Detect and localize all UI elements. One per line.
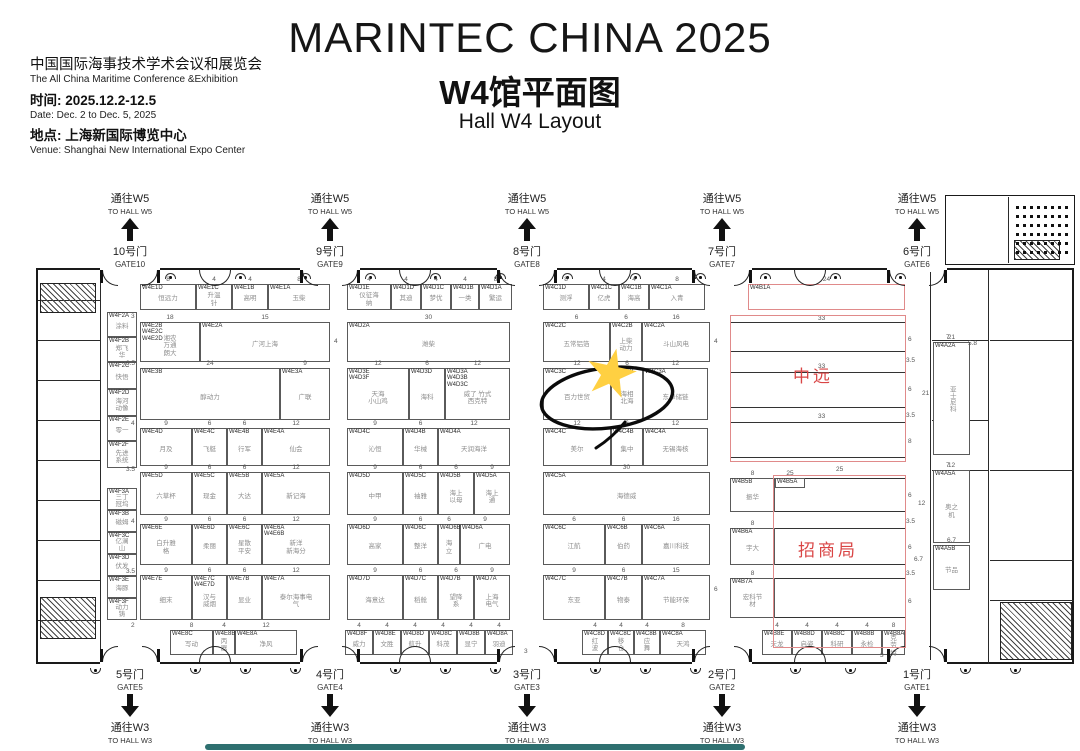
booth-exhibitor-label: 净风 bbox=[260, 641, 273, 648]
wall-fixture-dot-icon bbox=[444, 669, 447, 672]
booth-w4e3a: 9W4E3A广联 bbox=[280, 368, 330, 420]
booth-id-label: W4E1D bbox=[142, 285, 163, 291]
booth-exhibitor-label: 动力铸 bbox=[115, 604, 129, 619]
booth-id-label: W4A2A bbox=[935, 343, 955, 349]
seat-dot-icon bbox=[1030, 233, 1033, 236]
seat-dot-icon bbox=[1044, 224, 1047, 227]
booth-w4f3c: W4F3C亿澜山 bbox=[107, 532, 137, 554]
arrow-up-icon bbox=[713, 218, 731, 241]
booth-id-label: W4C8C bbox=[610, 631, 631, 637]
booth-size-label: 6 bbox=[243, 464, 247, 471]
zone-label-merchants: 招商局 bbox=[798, 536, 858, 561]
star-shape bbox=[584, 347, 638, 400]
booth-id-label: W4E6C bbox=[229, 525, 250, 531]
booth-w4d4a: 12W4D4A天润海洋 bbox=[438, 428, 510, 466]
dimension-label: 8 bbox=[908, 438, 912, 445]
wall-fixture-dot-icon bbox=[394, 669, 397, 672]
booth-w4f3f: W4F3F动力铸 bbox=[107, 598, 137, 620]
gate-door-en: GATE6 bbox=[904, 260, 930, 269]
wall-fixture-dot-icon bbox=[849, 669, 852, 672]
booth-id-label: W4E5B bbox=[229, 473, 249, 479]
booth-size-label: 25 bbox=[786, 470, 793, 477]
door-leaf-icon bbox=[300, 270, 303, 283]
booth-id-label: W4E6E bbox=[142, 525, 162, 531]
seat-dot-icon bbox=[1016, 206, 1019, 209]
booth-id-label: W4B1A bbox=[750, 285, 770, 291]
door-leaf-icon bbox=[749, 270, 752, 283]
booth-w4b5a: 25W4B5A bbox=[775, 478, 805, 488]
booth-id-label: W4B7A bbox=[732, 579, 752, 585]
booth-id-label: W4C1A bbox=[651, 285, 672, 291]
seat-dot-icon bbox=[1051, 224, 1054, 227]
booth-size-label: 4 bbox=[775, 622, 779, 629]
booth-w4c1d: 8W4C1D测浮 bbox=[543, 284, 589, 310]
booth-id-label: W4D1C bbox=[423, 285, 444, 291]
bottom-decor-strip bbox=[205, 744, 745, 750]
arrow-up-icon bbox=[518, 218, 536, 241]
booth-id-label: W4C8D bbox=[584, 631, 605, 637]
highlight-star-icon bbox=[584, 347, 638, 401]
wing-divider-wall bbox=[930, 270, 931, 664]
booth-id-label: W4D5C bbox=[405, 473, 426, 479]
booth-exhibitor-label: 威了 竹式 西克特 bbox=[464, 391, 492, 406]
seat-dot-icon bbox=[1023, 224, 1026, 227]
booth-id-label: W4D5B bbox=[440, 473, 461, 479]
seat-dot-icon bbox=[1016, 215, 1019, 218]
booth-id-label: W4B8D bbox=[794, 631, 815, 637]
booth-size-label: 12 bbox=[292, 516, 299, 523]
booth-size-label: 4 bbox=[835, 622, 839, 629]
gate-direction-en: TO HALL W5 bbox=[505, 207, 549, 216]
booth-w4d1c: 4W4D1C梦优 bbox=[421, 284, 451, 310]
booth-size-label: 6 bbox=[447, 516, 451, 523]
booth-id-label: W4E8B bbox=[215, 631, 235, 637]
booth-w4d2a: 30W4D2A潍柴 bbox=[347, 322, 510, 362]
booth-size-label: 8 bbox=[675, 276, 679, 283]
left-wing-room-wall bbox=[38, 420, 100, 421]
booth-id-label: W4F3D bbox=[109, 555, 129, 561]
booth-id-label: W4E8A bbox=[237, 631, 257, 637]
gate-door-en: GATE10 bbox=[115, 260, 145, 269]
booth-size-label: 6 bbox=[243, 516, 247, 523]
door-leaf-icon bbox=[300, 649, 303, 662]
booth-size-label: 12 bbox=[470, 420, 477, 427]
dimension-label: 6 bbox=[908, 598, 912, 605]
booth-exhibitor-label: 汉与 威烟 bbox=[203, 594, 216, 609]
booth-w4e7a: 12W4E7A泰尔海事电气 bbox=[262, 575, 330, 620]
booth-id-label: W4B8C bbox=[824, 631, 845, 637]
booth-w4c6c: 6W4C6C江航 bbox=[543, 524, 605, 565]
stairs-icon bbox=[40, 597, 96, 639]
booth-id-label: W4A5A bbox=[935, 471, 955, 477]
dimension-label: 3 bbox=[880, 652, 884, 659]
gate-direction-cn: 通往W5 bbox=[111, 190, 150, 206]
booth-id-label: W4D7C bbox=[405, 576, 426, 582]
booth-exhibitor-label: 中甲 bbox=[369, 493, 382, 500]
booth-exhibitor-label: 海高 bbox=[628, 295, 641, 302]
booth-w4c1c: 4W4C1C亿虎 bbox=[589, 284, 619, 310]
booth-id-label: W4C2C bbox=[545, 323, 566, 329]
gate-gate10: 通往W5TO HALL W510号门GATE10 bbox=[82, 190, 178, 269]
booth-w4e7c: 6W4E7C W4E7D汉与 威烟 bbox=[192, 575, 227, 620]
stairs-icon bbox=[40, 283, 96, 313]
booth-exhibitor-label: 节能环保 bbox=[663, 597, 689, 604]
booth-exhibitor-label: 上海电气 bbox=[484, 594, 501, 609]
booth-w4d7b: 6W4D7B望降系 bbox=[438, 575, 474, 620]
booth-size-label: 4 bbox=[497, 622, 501, 629]
booth-size-label: 4 bbox=[385, 622, 389, 629]
door-leaf-icon bbox=[497, 649, 500, 662]
booth-size-label: 9 bbox=[483, 516, 487, 523]
wall-fixture-dot-icon bbox=[1014, 669, 1017, 672]
booth-exhibitor-label: 现金 bbox=[203, 493, 216, 500]
seat-dot-icon bbox=[1051, 251, 1054, 254]
gate-direction-en: TO HALL W5 bbox=[895, 207, 939, 216]
booth-exhibitor-label: 仪征海纳 bbox=[359, 292, 380, 307]
booth-id-label: W4E7C W4E7D bbox=[194, 576, 215, 589]
booth-size-label: 4 bbox=[593, 622, 597, 629]
gate-gate8: 通往W5TO HALL W58号门GATE8 bbox=[479, 190, 575, 269]
booth-exhibitor-label: 细末 bbox=[160, 597, 173, 604]
gate-door-cn: 5号门 bbox=[116, 666, 144, 682]
booth-exhibitor-label: 宏科节材 bbox=[742, 594, 764, 609]
booth-exhibitor-label: 三丁冠坞 bbox=[115, 494, 129, 509]
booth-id-label: W4E2B W4E2C W4E2D bbox=[142, 323, 163, 342]
booth-w4a2a: 21W4A2A亚士尼科 bbox=[933, 342, 970, 455]
seat-dot-icon bbox=[1065, 224, 1068, 227]
booth-w4d8e: 4W4D8E文胜 bbox=[373, 630, 401, 655]
gate-direction-en: TO HALL W5 bbox=[700, 207, 744, 216]
booth-exhibitor-label: 稻舱 bbox=[414, 597, 427, 604]
seat-dot-icon bbox=[1016, 242, 1019, 245]
dimension-label: 6.7 bbox=[914, 556, 923, 563]
booth-size-label: 9 bbox=[373, 420, 377, 427]
booth-id-label: W4D3A W4D3B W4D3C bbox=[447, 369, 468, 388]
booth-exhibitor-label: 永检 bbox=[861, 641, 874, 648]
door-leaf-icon bbox=[692, 649, 695, 662]
booth-w4d6d: 9W4D6D高家 bbox=[347, 524, 403, 565]
booth-size-label: 8 bbox=[166, 276, 170, 283]
seat-dot-icon bbox=[1023, 233, 1026, 236]
booth-size-label: 9 bbox=[303, 360, 307, 367]
seat-dot-icon bbox=[1051, 206, 1054, 209]
booth-size-label: 4 bbox=[413, 622, 417, 629]
booth-id-label: W4C2B bbox=[612, 323, 633, 329]
seat-dot-icon bbox=[1023, 242, 1026, 245]
booth-id-label: W4C5A bbox=[545, 473, 566, 479]
gate-door-en: GATE5 bbox=[117, 683, 143, 692]
booth-id-label: W4E1B bbox=[234, 285, 254, 291]
door-leaf-icon bbox=[100, 649, 103, 662]
gate-direction-en: TO HALL W5 bbox=[308, 207, 352, 216]
booth-size-label: 4 bbox=[469, 622, 473, 629]
booth-id-label: W4B5B bbox=[732, 479, 752, 485]
booth-size-label: 6 bbox=[208, 420, 212, 427]
wall-fixture-dot-icon bbox=[644, 669, 647, 672]
booth-id-label: W4D7B bbox=[440, 576, 461, 582]
booth-w4e2b: 18W4E2B W4E2C W4E2D湘农 万通 朗大 bbox=[140, 322, 200, 362]
seat-dot-icon bbox=[1023, 251, 1026, 254]
seat-dot-icon bbox=[1051, 233, 1054, 236]
booth-exhibitor-label: 文胜 bbox=[381, 641, 394, 648]
booth-exhibitor-label: 潍柴 bbox=[422, 341, 435, 348]
wall-fixture-dot-icon bbox=[594, 669, 597, 672]
dimension-label: 4 bbox=[131, 420, 135, 427]
booth-size-label: 12 bbox=[262, 622, 269, 629]
booth-w4d1d: 4W4D1D其迪 bbox=[391, 284, 421, 310]
booth-size-label: 4 bbox=[645, 622, 649, 629]
booth-exhibitor-label: 奥之机 bbox=[943, 504, 961, 519]
booth-exhibitor-label: 泰尔海事电气 bbox=[280, 594, 313, 609]
arrow-down-icon bbox=[121, 694, 139, 717]
booth-id-label: W4D2A bbox=[349, 323, 370, 329]
booth-w4c7c: 9W4C7C东亚 bbox=[543, 575, 605, 620]
booth-w4d5d: 9W4D5D中甲 bbox=[347, 472, 403, 515]
booth-size-label: 16 bbox=[672, 314, 679, 321]
seat-dot-icon bbox=[1044, 215, 1047, 218]
booth-exhibitor-label: 飞艇 bbox=[203, 446, 216, 453]
booth-exhibitor-label: 海意达 bbox=[365, 597, 385, 604]
booth-w4e5a: 12W4E5A新记海 bbox=[262, 472, 330, 515]
booth-w4d5c: 6W4D5C袖雅 bbox=[403, 472, 438, 515]
booth-exhibitor-label: 天润海洋 bbox=[461, 446, 487, 453]
booth-exhibitor-label: 亿澜山 bbox=[115, 538, 129, 553]
dimension-label: 3.5 bbox=[906, 518, 915, 525]
left-wing-room-wall bbox=[38, 500, 100, 501]
wall-fixture-dot-icon bbox=[834, 276, 837, 279]
booth-w4e2a: 15W4E2A广河上海 bbox=[200, 322, 330, 362]
door-leaf-icon bbox=[357, 649, 360, 662]
booth-size-label: 9 bbox=[164, 567, 168, 574]
door-leaf-icon bbox=[887, 270, 890, 283]
booth-size-label: 6 bbox=[622, 516, 626, 523]
booth-exhibitor-label: 广联 bbox=[299, 394, 312, 401]
booth-w4d5a: 9W4D5A海上通 bbox=[474, 472, 510, 515]
booth-w4e6c: 6W4E6C星散平安 bbox=[227, 524, 262, 565]
booth-exhibitor-label: 恒远力 bbox=[158, 295, 178, 302]
booth-exhibitor-label: 白升雅格 bbox=[154, 540, 179, 555]
booth-w4d7a: 9W4D7A上海电气 bbox=[474, 575, 510, 620]
booth-exhibitor-label: 红波 bbox=[589, 638, 601, 653]
booth-size-label: 30 bbox=[623, 464, 630, 471]
booth-size-label: 6 bbox=[208, 464, 212, 471]
seat-dot-icon bbox=[1044, 251, 1047, 254]
wing-divider-wall bbox=[100, 270, 101, 664]
booth-w4f3e: W4F3E海豚 bbox=[107, 576, 137, 598]
booth-id-label: W4D1B bbox=[453, 285, 474, 291]
gate-door-en: GATE7 bbox=[709, 260, 735, 269]
booth-w4a5a: 12W4A5A奥之机 bbox=[933, 470, 970, 543]
left-wing-room-wall bbox=[38, 540, 100, 541]
gate-door-cn: 1号门 bbox=[903, 666, 931, 682]
booth-w4e6d: 6W4E6D柔丽 bbox=[192, 524, 227, 565]
seat-dot-icon bbox=[1016, 224, 1019, 227]
door-leaf-icon bbox=[749, 649, 752, 662]
booth-exhibitor-label: 先进系统 bbox=[115, 450, 129, 465]
booth-size-label: 4 bbox=[865, 622, 869, 629]
left-wing-room-wall bbox=[38, 460, 100, 461]
booth-size-label: 24 bbox=[206, 360, 213, 367]
booth-exhibitor-label: 天海 小山鸡 bbox=[368, 391, 388, 406]
booth-id-label: W4F2F bbox=[109, 442, 129, 448]
booth-id-label: W4C6A bbox=[644, 525, 665, 531]
booth-w4e7e: 9W4E7E细末 bbox=[140, 575, 192, 620]
booth-size-label: 6 bbox=[243, 567, 247, 574]
booth-exhibitor-label: 柔丽 bbox=[203, 543, 216, 550]
seat-dot-icon bbox=[1030, 215, 1033, 218]
booth-exhibitor-label: 零一 bbox=[116, 427, 129, 434]
wall-fixture-dot-icon bbox=[239, 276, 242, 279]
door-leaf-icon bbox=[944, 270, 947, 283]
booth-id-label: W4D4B bbox=[405, 429, 426, 435]
booth-size-label: 8 bbox=[751, 470, 755, 477]
gate-door-en: GATE1 bbox=[904, 683, 930, 692]
booth-exhibitor-label: 嘉川科技 bbox=[663, 543, 689, 550]
wall-fixture-dot-icon bbox=[794, 669, 797, 672]
booth-exhibitor-label: 节品 bbox=[945, 567, 958, 574]
booth-w4d3d: 6W4D3D海科 bbox=[409, 368, 445, 420]
booth-exhibitor-label: 望降系 bbox=[448, 594, 465, 609]
booth-size-label: 8 bbox=[681, 622, 685, 629]
booth-id-label: W4F2D bbox=[109, 390, 129, 396]
booth-id-label: W4C6C bbox=[545, 525, 566, 531]
dimension-label: 6 bbox=[714, 586, 718, 593]
booth-exhibitor-label: 袖雅 bbox=[414, 493, 427, 500]
booth-size-label: 9 bbox=[164, 516, 168, 523]
seat-dot-icon bbox=[1065, 251, 1068, 254]
gate-gate9: 通往W5TO HALL W59号门GATE9 bbox=[282, 190, 378, 269]
booth-exhibitor-label: 广河上海 bbox=[252, 341, 278, 348]
booth-exhibitor-label: 天龙 bbox=[771, 641, 784, 648]
seat-dot-icon bbox=[1037, 215, 1040, 218]
seat-dot-icon bbox=[1030, 224, 1033, 227]
booth-exhibitor-label: 涂料 bbox=[116, 323, 129, 330]
booth-size-label: 8 bbox=[190, 622, 194, 629]
arrow-up-icon bbox=[121, 218, 139, 241]
dimension-label: 3 bbox=[524, 648, 528, 655]
booth-id-label: W4E8C bbox=[172, 631, 193, 637]
booth-exhibitor-label: 写动 bbox=[185, 641, 198, 648]
dimension-label: 33 bbox=[818, 315, 825, 322]
arrow-up-icon bbox=[321, 218, 339, 241]
booth-exhibitor-label: 沁恒 bbox=[369, 446, 382, 453]
booth-size-label: 8 bbox=[564, 276, 568, 283]
gate-gate1: 1号门GATE1通往W3TO HALL W3 bbox=[869, 666, 965, 745]
seat-dot-icon bbox=[1023, 215, 1026, 218]
booth-id-label: W4E2A bbox=[202, 323, 222, 329]
dimension-label: 33 bbox=[818, 413, 825, 420]
booth-w4d7c: 6W4D7C稻舱 bbox=[403, 575, 438, 620]
booth-w4d8c: 4W4D8C科茂 bbox=[429, 630, 457, 655]
booth-size-label: 9 bbox=[373, 464, 377, 471]
booth-w4b8c: 4W4B8C科研 bbox=[822, 630, 852, 655]
zone-row-cosco bbox=[730, 322, 906, 352]
booth-exhibitor-label: 江航 bbox=[568, 543, 581, 550]
seat-dot-icon bbox=[1051, 215, 1054, 218]
booth-size-label: 9 bbox=[572, 567, 576, 574]
booth-id-label: W4F2B bbox=[109, 338, 129, 344]
booth-id-label: W4D5D bbox=[349, 473, 370, 479]
seat-dot-icon bbox=[1016, 233, 1019, 236]
booth-w4c8b: 4W4C8B应舞 bbox=[634, 630, 660, 655]
booth-exhibitor-label: 羽迪 bbox=[493, 641, 506, 648]
booth-w4e5c: 6W4E5C现金 bbox=[192, 472, 227, 515]
booth-w4e1c: 4W4E1C升温针 bbox=[196, 284, 232, 310]
booth-size-label: 8 bbox=[751, 520, 755, 527]
booth-exhibitor-label: 高家 bbox=[369, 543, 382, 550]
booth-exhibitor-label: 其迪 bbox=[400, 295, 413, 302]
booth-size-label: 9 bbox=[490, 464, 494, 471]
booth-w4d1e: 4W4D1E仪征海纳 bbox=[347, 284, 391, 310]
dimension-label: 3 bbox=[131, 313, 135, 320]
wall-fixture-dot-icon bbox=[194, 669, 197, 672]
booth-exhibitor-label: 显业 bbox=[238, 597, 251, 604]
booth-exhibitor-label: 海上通 bbox=[484, 490, 501, 505]
booth-exhibitor-label: 亚士尼科 bbox=[948, 386, 955, 412]
booth-w4d8b: 4W4D8B显宁 bbox=[457, 630, 485, 655]
dimension-label: 3.5 bbox=[126, 466, 135, 473]
booth-exhibitor-label: 宇大 bbox=[746, 545, 759, 552]
booth-id-label: W4D4A bbox=[440, 429, 461, 435]
left-wing-room-wall bbox=[38, 340, 100, 341]
booth-w4c7b: 6W4C7B物泰 bbox=[605, 575, 642, 620]
gate-direction-cn: 通往W5 bbox=[898, 190, 937, 206]
booth-id-label: W4C1D bbox=[545, 285, 566, 291]
booth-id-label: W4E7E bbox=[142, 576, 162, 582]
door-leaf-icon bbox=[357, 270, 360, 283]
gate-direction-cn: 通往W3 bbox=[111, 719, 150, 735]
booth-exhibitor-label: 海河动像 bbox=[115, 398, 129, 413]
booth-exhibitor-label: 入青 bbox=[671, 295, 684, 302]
seat-dot-icon bbox=[1037, 251, 1040, 254]
gate-direction-cn: 通往W5 bbox=[508, 190, 547, 206]
booth-id-label: W4B8E bbox=[764, 631, 784, 637]
booth-size-label: 16 bbox=[672, 516, 679, 523]
booth-id-label: W4E5A bbox=[264, 473, 284, 479]
gate-door-en: GATE2 bbox=[709, 683, 735, 692]
dimension-label: 3.5 bbox=[126, 568, 135, 575]
booth-id-label: W4D8E bbox=[375, 631, 396, 637]
booth-id-label: W4C1B bbox=[621, 285, 642, 291]
seat-dot-icon bbox=[1044, 206, 1047, 209]
seat-dot-icon bbox=[1030, 206, 1033, 209]
left-wing-room-wall bbox=[38, 380, 100, 381]
booth-id-label: W4E7A bbox=[264, 576, 284, 582]
seat-dot-icon bbox=[1037, 242, 1040, 245]
booth-size-label: 9 bbox=[373, 516, 377, 523]
booth-size-label: 4 bbox=[367, 276, 371, 283]
booth-id-label: W4D4C bbox=[349, 429, 370, 435]
booth-size-label: 6 bbox=[243, 420, 247, 427]
gate-direction-cn: 通往W3 bbox=[898, 719, 937, 735]
booth-exhibitor-label: 威力 bbox=[353, 641, 366, 648]
booth-exhibitor-label: 海立 bbox=[444, 540, 454, 555]
right-wing-room-wall bbox=[990, 560, 1074, 561]
booth-w4d6b: 6W4D6B海立 bbox=[438, 524, 460, 565]
wing-divider-wall bbox=[988, 270, 989, 664]
booth-w4c1b: 4W4C1B海高 bbox=[619, 284, 649, 310]
seat-dot-icon bbox=[1065, 242, 1068, 245]
door-leaf-icon bbox=[497, 270, 500, 283]
seat-dot-icon bbox=[1030, 242, 1033, 245]
booth-id-label: W4E5D bbox=[142, 473, 163, 479]
booth-w4d3a: 12W4D3A W4D3B W4D3C威了 竹式 西克特 bbox=[445, 368, 510, 420]
booth-id-label: W4C2A bbox=[644, 323, 665, 329]
dimension-label: 4 bbox=[714, 338, 718, 345]
seat-dot-icon bbox=[1037, 206, 1040, 209]
door-leaf-icon bbox=[887, 649, 890, 662]
booth-id-label: W4B6A bbox=[732, 529, 752, 535]
